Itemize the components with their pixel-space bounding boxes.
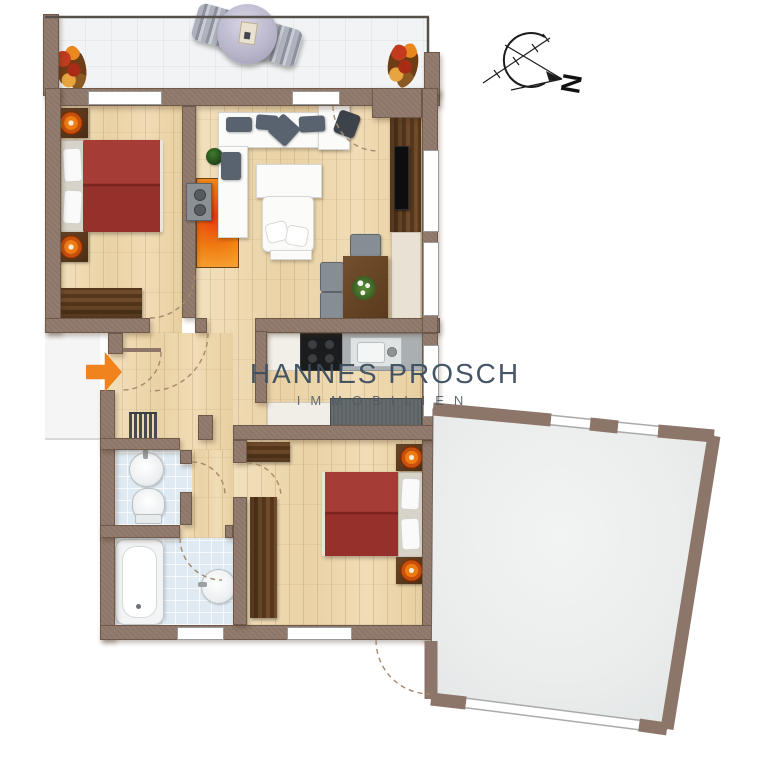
armchair-base [270,250,312,260]
wall [100,625,438,640]
balcony-door [292,91,340,105]
bedside-lamp-icon [400,559,423,582]
bed-pillow [62,190,83,225]
book-detail [244,32,251,40]
terrace-railing [466,420,658,725]
tv-icon [394,146,409,210]
kitchen-lower-cabinet [267,402,332,427]
heater-knob [194,189,206,201]
dining-chair [320,262,344,292]
kitchen-lower-counter [330,398,422,427]
hallway-floor [108,333,233,450]
window [423,150,439,232]
wall [180,450,192,464]
bed-pillow [400,518,421,551]
terrace [431,409,714,729]
kitchen-cabinet [267,333,302,371]
wall [233,497,247,625]
wall-heater [186,183,212,221]
compass-north-icon: N [483,33,588,96]
wall [255,318,440,333]
wall [233,425,440,440]
wall [372,88,422,118]
wall [108,333,123,354]
bath-faucet-icon [198,582,207,587]
bed-pillow [400,478,421,511]
sofa-cushion [221,152,241,180]
dining-chair [320,292,344,321]
bed-duvet [322,472,401,556]
coffee-table [256,164,322,198]
bedside-lamp-icon [400,446,423,469]
wardrobe [250,497,277,618]
bathtub-drain [136,604,141,609]
wall [225,525,233,538]
armchair-pillow [284,224,309,248]
burner [308,354,317,363]
sink-unit [350,337,402,367]
flower-bowl-icon [352,276,376,300]
bedside-lamp-icon [59,235,83,259]
double-bed-2 [322,472,422,556]
wall [233,440,247,463]
burner [325,340,334,349]
sideboard [247,442,290,462]
wc-faucet-icon [143,449,148,459]
cooktop [300,333,344,371]
floor-plan: N HANNES PROSCH IMMOBILIEN [0,0,776,771]
lounger-book [238,21,258,45]
wall [45,318,150,333]
faucet-icon [387,347,397,357]
sideboard [50,288,142,318]
wall [100,390,115,640]
compass-label: N [555,71,588,95]
bathtub [115,539,164,625]
tall-cabinet [391,232,421,320]
wall [422,440,438,640]
window [177,627,224,640]
wall [45,88,61,333]
wall [255,331,267,403]
wall [100,525,180,538]
window [88,91,162,105]
entrance-walkway [45,333,100,440]
toilet-tank [135,514,162,524]
bed-pillow [62,148,83,183]
bedside-lamp-icon [59,111,83,135]
heater-knob [194,204,206,216]
wall [43,14,59,96]
sink-bowl [357,342,385,363]
radiator-icon [129,412,157,441]
double-bed-1 [61,140,160,232]
wall [195,318,207,333]
window [423,242,439,316]
wall [180,492,192,525]
sofa-cushion [299,115,326,132]
window [423,345,439,417]
window [287,627,352,640]
sofa-cushion [226,117,252,132]
burner [325,354,334,363]
burner [308,340,317,349]
wall [198,415,213,440]
dining-chair [350,234,381,257]
bed-duvet [83,140,163,232]
wall [100,438,180,450]
